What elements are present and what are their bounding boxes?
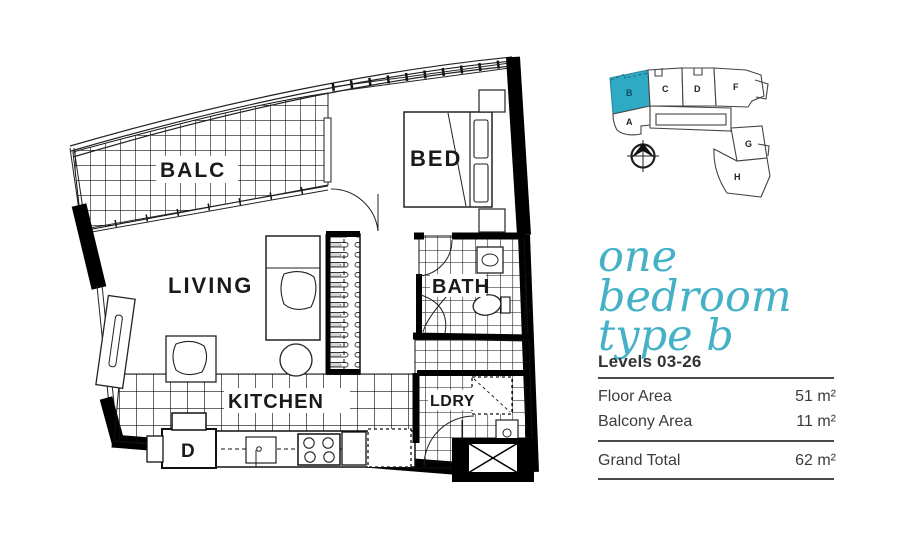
table-row-grand-total: Grand Total 62 m² — [598, 452, 836, 470]
row-label: Floor Area — [598, 388, 672, 406]
keyplan-label-G: G — [745, 139, 752, 149]
keyplan-label-A: A — [626, 117, 633, 127]
keyplan-corridor — [650, 106, 731, 131]
table-row-balcony-area: Balcony Area 11 m² — [598, 413, 836, 431]
plan-title-line2: type b — [598, 317, 836, 357]
table-row-floor-area: Floor Area 51 m² — [598, 388, 836, 406]
right-wall-upper — [513, 57, 524, 235]
keyplan-label-D: D — [694, 84, 701, 94]
divider — [598, 377, 834, 379]
row-label: Grand Total — [598, 452, 680, 470]
label-kitchen: KITCHEN — [228, 391, 324, 413]
row-label: Balcony Area — [598, 413, 692, 431]
label-dishwasher: D — [181, 441, 195, 462]
bedroom-door-arc — [331, 189, 378, 231]
north-compass-icon — [627, 140, 659, 172]
basin — [477, 247, 503, 273]
duct-riser — [452, 438, 534, 482]
keyplan-label-B: B — [626, 88, 633, 98]
area-table: Floor Area 51 m² Balcony Area 11 m² — [598, 388, 836, 431]
plan-title: one bedroom type b — [598, 238, 836, 357]
row-value: 62 m² — [795, 452, 836, 470]
levels-heading: Levels 03-26 — [598, 352, 836, 372]
label-living: LIVING — [168, 273, 253, 298]
fridge-space — [368, 429, 411, 467]
wardrobe — [326, 234, 360, 374]
sofa-cushion — [281, 272, 316, 310]
label-bedroom: BED — [410, 146, 462, 171]
divider — [598, 440, 834, 442]
label-balcony: BALC — [160, 159, 226, 182]
floorplan-page: BALC BED LIVING BATH KITCHEN LDRY D B C — [0, 0, 900, 540]
keyplan-label-C: C — [662, 84, 669, 94]
divider — [598, 478, 834, 480]
label-laundry: LDRY — [430, 393, 475, 410]
row-value: 51 m² — [795, 388, 836, 406]
apartment-plan: BALC BED LIVING BATH KITCHEN LDRY D — [70, 57, 534, 482]
pillow — [474, 120, 488, 158]
keyplan-unit-F — [714, 68, 764, 107]
pillow — [474, 164, 488, 202]
cooktop — [298, 434, 340, 465]
row-value: 11 m² — [796, 413, 836, 431]
bedside-table — [479, 90, 505, 112]
side-table — [280, 344, 312, 376]
keyplan-label-F: F — [733, 82, 739, 92]
living-furniture — [96, 236, 320, 388]
keyplan-label-H: H — [734, 172, 741, 182]
keyplan: B C D F A G H — [610, 68, 770, 197]
bedside-table — [479, 209, 505, 232]
plan-title-line1: one bedroom — [598, 238, 836, 317]
label-bathroom: BATH — [432, 276, 490, 298]
